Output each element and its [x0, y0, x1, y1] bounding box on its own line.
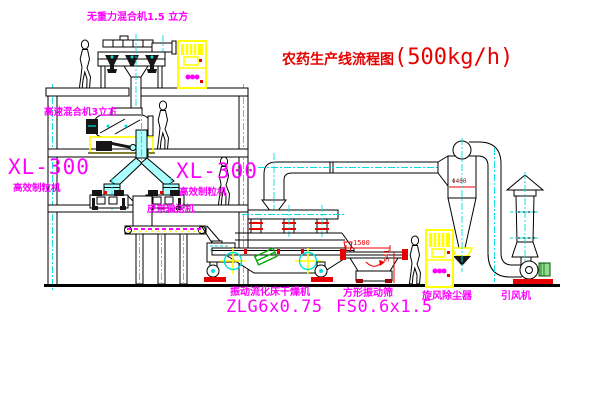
label-fan: 引风机	[501, 292, 531, 302]
label-top-mixer: 无重力混合机1.5 立方	[87, 13, 188, 23]
control-cabinet-2	[426, 230, 453, 287]
dim-sieve-height: 541	[384, 249, 391, 262]
label-left-unit-model: XL-300	[8, 157, 90, 178]
person-icon	[79, 40, 90, 88]
person-icon	[157, 101, 168, 149]
label-left-unit-name: 高效制粒机	[13, 184, 61, 194]
title-capacity: (500kg/h)	[394, 45, 513, 70]
label-belt-conveyor: 皮带输送机	[147, 205, 195, 215]
induced-draft-fan	[513, 261, 553, 284]
exhaust-duct	[258, 153, 448, 216]
label-cyclone: 旋风除尘器	[422, 292, 472, 302]
dim-sieve-length: 1500	[353, 240, 370, 247]
label-sieve-model: FS0.6x1.5	[336, 299, 433, 316]
person-icon	[409, 236, 420, 284]
diagram-title: 农药生产线流程图(500kg/h)	[282, 45, 513, 70]
exhaust-pipe	[469, 142, 522, 282]
label-floor2-mixer: 高速混合机3立方	[44, 108, 117, 118]
vibrating-screen	[340, 242, 408, 283]
dim-cyclone-note: Φ400	[452, 179, 466, 185]
fluid-bed-dryer	[204, 205, 362, 282]
label-mid-unit-name: 高效制粒机	[179, 188, 227, 198]
control-cabinet-1	[178, 41, 206, 88]
pesticide-flow-diagram: 农药生产线流程图(500kg/h) 无重力混合机1.5 立方 高速混合机3立方 …	[0, 0, 600, 403]
label-mid-unit-model: XL-300	[176, 161, 258, 182]
title-text: 农药生产线流程图	[282, 52, 394, 68]
label-dryer-model: ZLG6x0.75	[226, 299, 323, 316]
